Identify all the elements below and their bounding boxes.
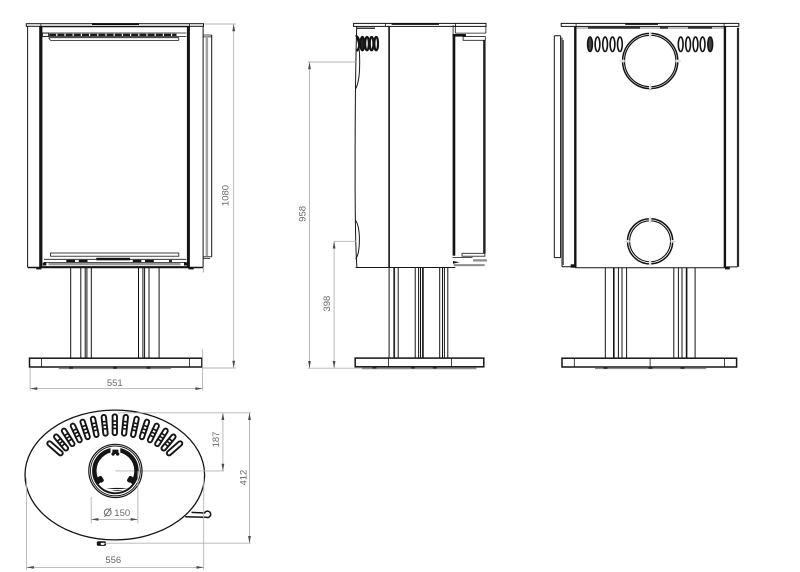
svg-text:551: 551 (107, 378, 123, 389)
svg-text:556: 556 (105, 555, 121, 566)
svg-text:1080: 1080 (221, 185, 232, 206)
svg-text:398: 398 (322, 296, 333, 312)
svg-text:150: 150 (114, 508, 130, 519)
svg-text:187: 187 (211, 432, 222, 448)
svg-text:412: 412 (238, 470, 249, 486)
svg-text:958: 958 (297, 206, 308, 222)
